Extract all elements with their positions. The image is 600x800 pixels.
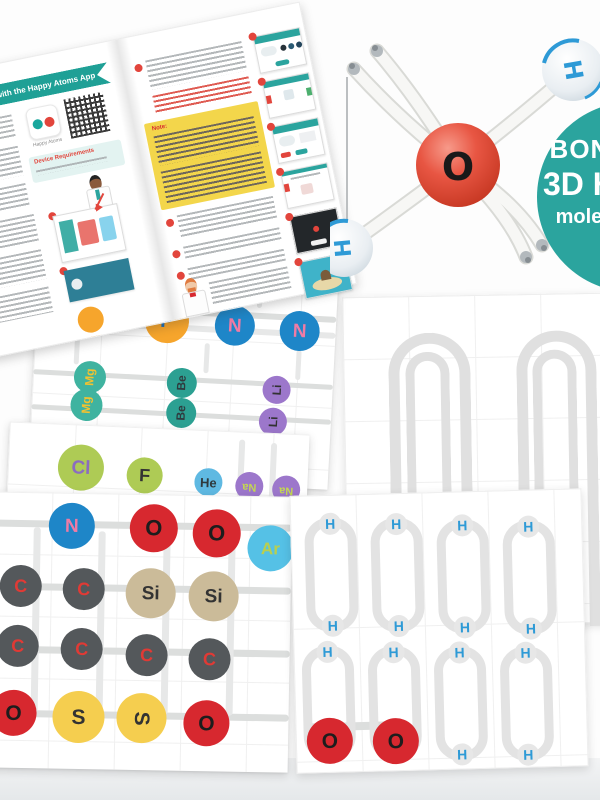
atom-symbol: Li xyxy=(270,384,283,395)
bond-track xyxy=(161,534,171,714)
app-screenshot-thumbnail xyxy=(280,162,335,209)
atom-symbol: Si xyxy=(142,584,160,603)
body-text-placeholder xyxy=(0,114,16,149)
atom-piece: Be xyxy=(165,397,197,429)
atom-symbol: C xyxy=(77,580,90,598)
atom-piece: S xyxy=(52,691,105,744)
atom-symbol: O xyxy=(145,517,163,539)
bond-track xyxy=(96,531,106,713)
badge-line-1: BONUS xyxy=(539,134,600,165)
atom-symbol: C xyxy=(140,646,153,664)
atom-symbol: Na xyxy=(242,480,257,492)
atom-symbol: H xyxy=(319,513,342,536)
atom-symbol: N xyxy=(65,516,79,535)
screenshot-content xyxy=(266,95,272,104)
bond-track xyxy=(226,538,236,716)
atom-symbol: Si xyxy=(204,587,222,606)
product-photo: P P N N Mg Mg Be Be Li Li Cl F He Na Na … xyxy=(0,0,600,800)
screenshot-content xyxy=(77,219,99,246)
atom-symbol: N xyxy=(228,316,243,336)
atom-symbol: H xyxy=(517,515,540,538)
atom-symbol: H xyxy=(514,641,537,664)
atom-piece: O xyxy=(306,717,353,764)
hydroxide-track: H O xyxy=(367,646,422,761)
bond-track xyxy=(203,343,210,373)
atom-piece: N xyxy=(48,502,95,549)
atom-piece: O xyxy=(129,504,178,553)
note-heading: Note: xyxy=(151,124,167,133)
screenshot-header xyxy=(263,73,309,88)
scientist-illustration xyxy=(176,275,211,318)
hydrogen-pair-track: H H xyxy=(370,517,425,632)
screenshot-header xyxy=(254,28,300,44)
app-screenshot-thumbnail xyxy=(262,72,317,119)
atom-symbol: H xyxy=(517,743,540,766)
hydrogen-puzzle-sheet: H H H H H H H H H O H O H H H H xyxy=(289,488,588,774)
screenshot-content xyxy=(278,134,296,147)
badge-line-3: molecule xyxy=(539,206,600,229)
hydrogen-pair-track: H H xyxy=(499,646,554,761)
atom-symbol: Mg xyxy=(80,396,93,414)
atom-symbol: H xyxy=(451,743,474,766)
atom-piece: Ar xyxy=(247,525,294,572)
hydroxide-track: H O xyxy=(301,645,356,760)
hydrogen-pair-track: H H xyxy=(304,517,359,632)
atom-symbol: H xyxy=(388,615,411,638)
screenshot-content xyxy=(284,183,290,192)
body-text-placeholder xyxy=(0,286,53,324)
atom-symbol: O xyxy=(5,702,22,723)
body-text-placeholder xyxy=(0,249,47,291)
atom-symbol: Ar xyxy=(261,540,280,557)
atom-symbol: H xyxy=(385,513,408,536)
body-text-placeholder xyxy=(0,214,39,254)
atom-symbol: He xyxy=(200,475,217,489)
atom-symbol: S xyxy=(131,711,152,725)
atom-symbol: O xyxy=(198,713,215,734)
atom-symbol: H xyxy=(316,641,339,664)
oxygen-label: O xyxy=(442,145,474,189)
atom-piece: S xyxy=(116,693,167,744)
body-text-placeholder xyxy=(0,146,24,187)
screenshot-content xyxy=(299,130,317,143)
screenshot-button xyxy=(295,148,308,155)
screenshot-content xyxy=(70,278,83,291)
screenshot-button xyxy=(280,151,291,158)
hydrogen-pair-track: H H xyxy=(502,520,557,635)
hydrogen-pair-track: H H xyxy=(433,646,488,761)
step-number-badge xyxy=(134,63,143,72)
atom-piece: O xyxy=(372,718,419,765)
atom-piece: O xyxy=(183,700,230,747)
bond-track xyxy=(295,350,302,380)
step-photo-thumbnail xyxy=(64,258,135,303)
atom-piece: F xyxy=(126,457,164,495)
atom-symbol: H xyxy=(322,614,345,637)
screenshot-content xyxy=(283,89,295,101)
atom-piece: He xyxy=(194,468,223,497)
atom-symbol: Cl xyxy=(71,458,91,478)
screenshot-content xyxy=(300,183,314,195)
atom-symbol: Mg xyxy=(84,368,97,386)
atom-symbol: Na xyxy=(279,484,294,496)
atom-symbol: C xyxy=(11,637,24,655)
app-screenshot-thumbnail xyxy=(271,117,326,164)
app-screenshot-thumbnail xyxy=(253,27,308,74)
screenshot-content xyxy=(313,225,320,232)
step-number-badge xyxy=(172,250,181,259)
atom-symbol: O xyxy=(208,522,226,544)
screenshot-content xyxy=(59,219,79,253)
atom-symbol: O xyxy=(321,730,338,751)
atom-piece: Cl xyxy=(57,444,105,492)
atom-symbol: C xyxy=(203,650,216,668)
atom-piece: C xyxy=(188,638,231,681)
carbon-puzzle-sheet: N O O Ar C C Si Si C C C C O S S O xyxy=(0,491,292,772)
bond-track xyxy=(31,527,41,712)
atom-piece: Li xyxy=(262,375,291,404)
atom-symbol: H xyxy=(454,616,477,639)
step-photo-thumbnail xyxy=(52,203,126,263)
atom-symbol: H xyxy=(382,641,405,664)
atom-symbol: C xyxy=(14,577,27,595)
atom-symbol: H xyxy=(451,514,474,537)
atom-symbol: H xyxy=(448,641,471,664)
atom-symbol: Li xyxy=(267,416,280,427)
hydrogen-pair-track: H H xyxy=(436,519,491,634)
badge-line-2: 3D H₂O xyxy=(539,166,600,203)
atom-piece: Be xyxy=(166,367,198,399)
screenshot-content xyxy=(306,87,312,96)
atom-symbol: Be xyxy=(175,375,188,391)
screenshot-content xyxy=(99,215,118,241)
atom-symbol: N xyxy=(292,321,307,341)
screenshot-content xyxy=(260,45,277,57)
hydrogen-label: H xyxy=(331,238,358,259)
qr-code xyxy=(61,89,113,141)
step-photo-orange-atom xyxy=(75,304,106,335)
screenshot-button xyxy=(311,238,328,246)
atom-symbol: H xyxy=(520,617,543,640)
atom-symbol: F xyxy=(139,466,151,484)
molecule-logo-icon xyxy=(32,118,44,130)
atom-piece: Mg xyxy=(70,388,104,422)
body-text-placeholder xyxy=(0,183,30,218)
screenshot-content xyxy=(280,44,287,51)
atom-symbol: O xyxy=(387,730,404,751)
note-box: Note: xyxy=(144,101,275,210)
screenshot-button xyxy=(275,59,290,67)
step-number-badge xyxy=(165,218,174,227)
atom-symbol: S xyxy=(71,706,85,727)
app-icon xyxy=(25,103,63,141)
atom-symbol: Be xyxy=(175,405,188,421)
atom-symbol: C xyxy=(75,640,88,658)
